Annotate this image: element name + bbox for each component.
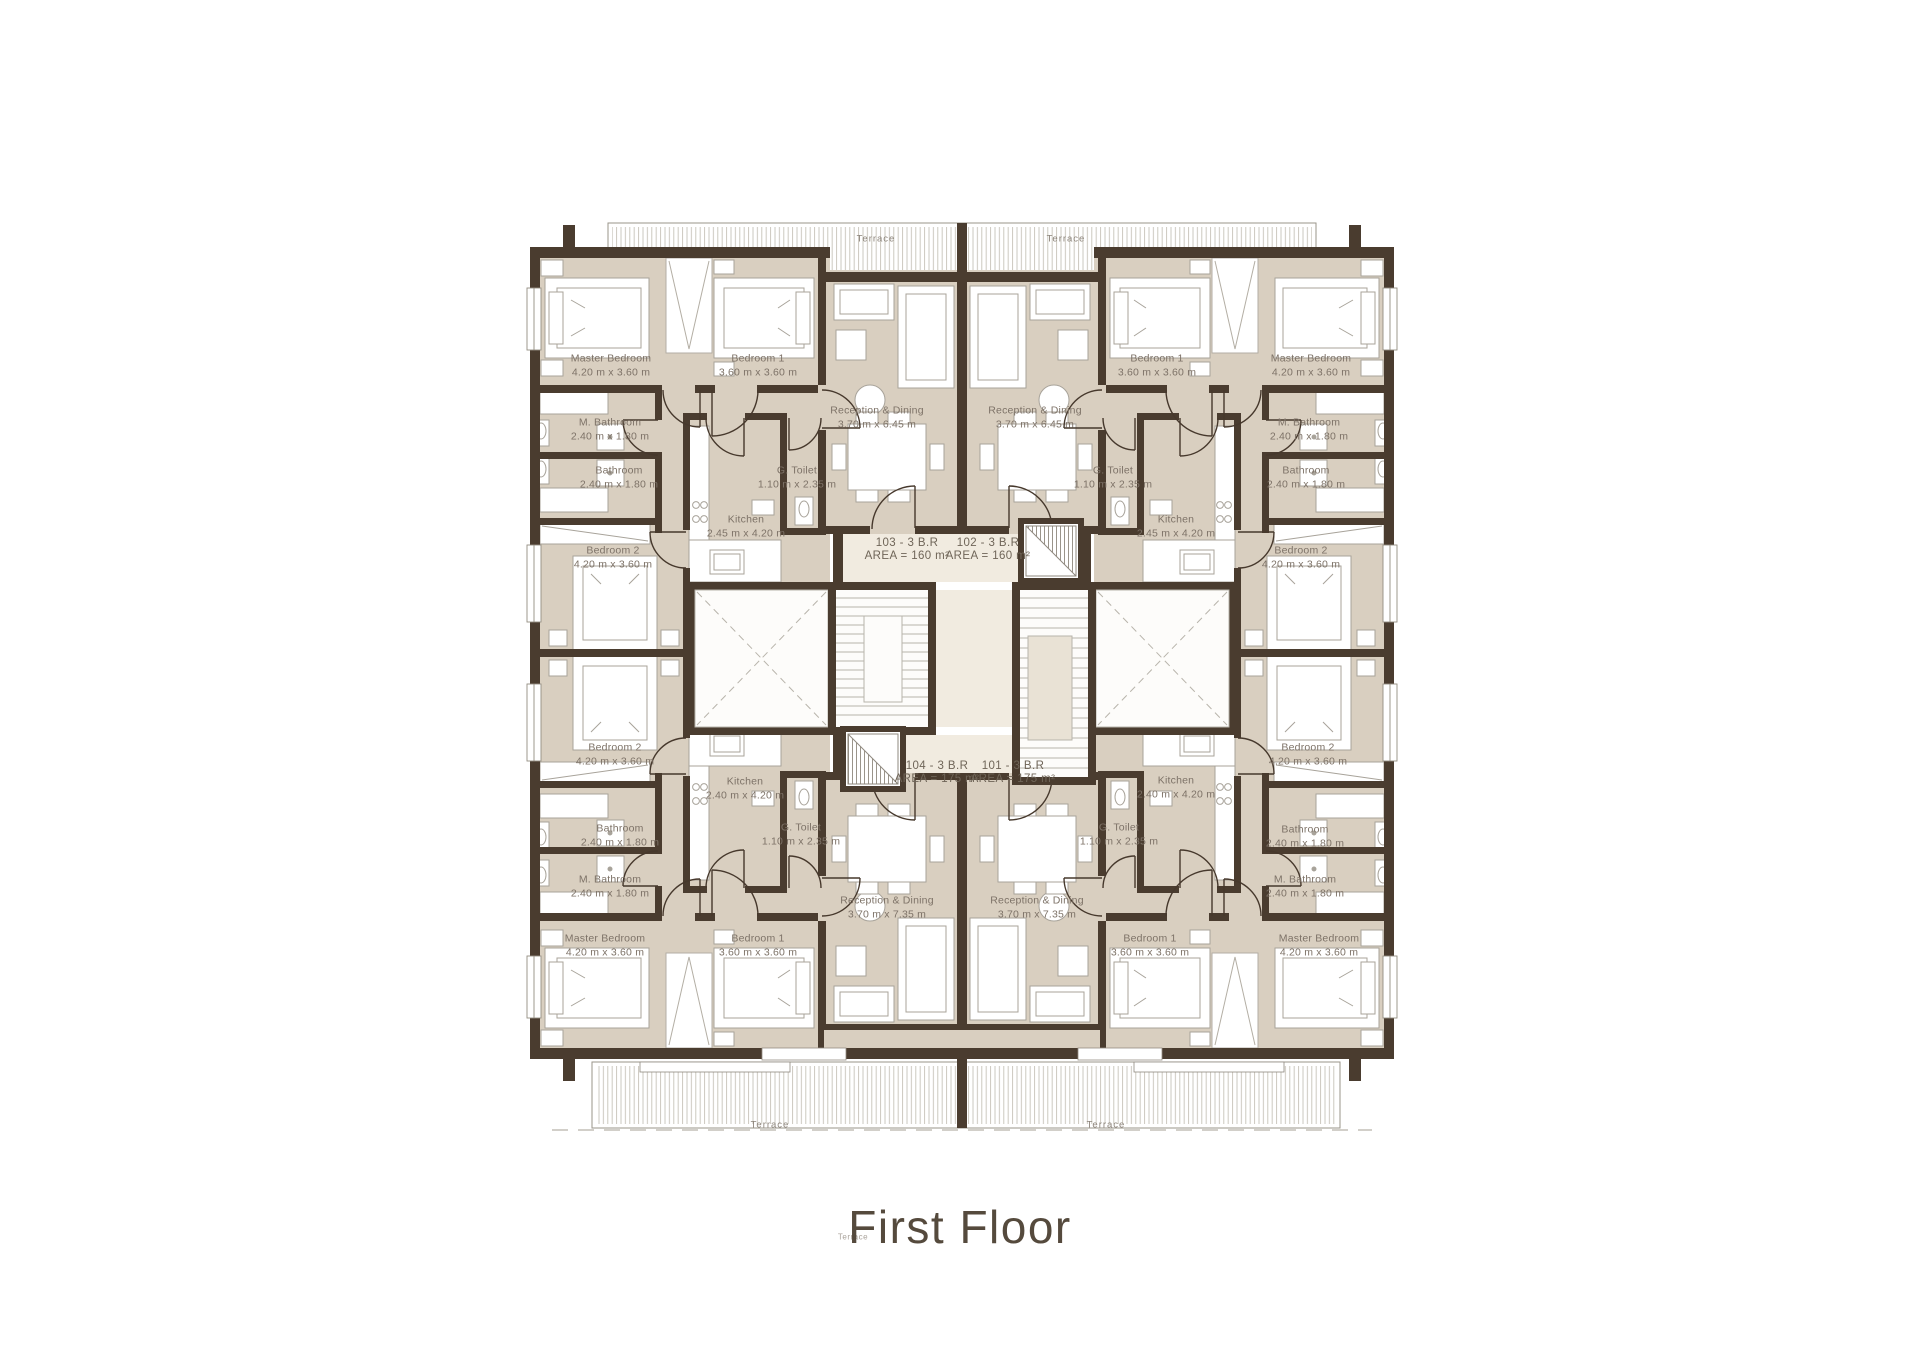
unit-number: 103 - 3 B.R — [865, 537, 950, 550]
unit-tag-103: 103 - 3 B.R AREA = 160 m² — [865, 537, 950, 563]
unit-tag-101: 101 - 3 B.R AREA = 175 m² — [971, 760, 1056, 786]
room-name: M. Bathroom — [571, 416, 649, 430]
room-dims: 3.60 m x 3.60 m — [719, 946, 797, 960]
room-name: Master Bedroom — [571, 352, 651, 366]
room-dims: 2.40 m x 1.80 m — [580, 478, 658, 492]
room-dims: 4.20 m x 3.60 m — [1279, 946, 1359, 960]
unit-number: 104 - 3 B.R — [895, 760, 980, 773]
room-name: Kitchen — [707, 513, 785, 527]
room-dims: 3.60 m x 3.60 m — [1118, 366, 1196, 380]
room-name: Bathroom — [1267, 464, 1345, 478]
room-label-103-master: Master Bedroom 4.20 m x 3.60 m — [571, 352, 651, 379]
light-well-right — [1088, 582, 1236, 735]
room-label-103-g-toilet: G. Toilet 1.10 m x 2.35 m — [758, 464, 836, 491]
terrace-label-bottom-left: Terrace — [751, 1120, 790, 1131]
room-name: Bathroom — [1266, 823, 1344, 837]
room-name: G. Toilet — [1080, 821, 1158, 835]
room-name: G. Toilet — [758, 464, 836, 478]
floor-plan-drawing — [0, 0, 1920, 1358]
room-name: Master Bedroom — [1271, 352, 1351, 366]
room-name: Bedroom 2 — [576, 741, 654, 755]
light-well-left — [688, 582, 836, 735]
room-name: Bedroom 2 — [574, 544, 652, 558]
room-dims: 1.10 m x 2.35 m — [758, 478, 836, 492]
room-label-104-master: Master Bedroom 4.20 m x 3.60 m — [565, 932, 645, 959]
room-dims: 3.70 m x 7.35 m — [840, 908, 934, 922]
room-dims: 2.40 m x 1.80 m — [1270, 430, 1348, 444]
room-label-102-g-toilet: G. Toilet 1.10 m x 2.35 m — [1074, 464, 1152, 491]
room-name: M. Bathroom — [571, 873, 649, 887]
room-name: Bathroom — [581, 822, 659, 836]
wardrobe — [666, 258, 712, 353]
room-name: Bedroom 1 — [719, 932, 797, 946]
staircase-right — [1012, 582, 1096, 785]
room-label-102-kitchen: Kitchen 2.45 m x 4.20 m — [1137, 513, 1215, 540]
room-dims: 1.10 m x 2.35 m — [762, 835, 840, 849]
room-name: G. Toilet — [1074, 464, 1152, 478]
room-label-104-bedroom2: Bedroom 2 4.20 m x 3.60 m — [576, 741, 654, 768]
unit-area: AREA = 175 m² — [971, 773, 1056, 786]
staircase-left — [828, 582, 936, 735]
unit-area: AREA = 160 m² — [865, 550, 950, 563]
room-label-101-g-toilet: G. Toilet 1.10 m x 2.35 m — [1080, 821, 1158, 848]
unit-area: AREA = 175 m² — [895, 773, 980, 786]
room-label-102-reception: Reception & Dining 3.70 m x 6.45 m — [988, 404, 1082, 431]
room-name: Bedroom 1 — [1118, 352, 1196, 366]
room-label-102-bedroom1: Bedroom 1 3.60 m x 3.60 m — [1118, 352, 1196, 379]
room-dims: 2.40 m x 1.80 m — [1266, 887, 1344, 901]
unit-area: AREA = 160 m² — [946, 550, 1031, 563]
room-label-101-master: Master Bedroom 4.20 m x 3.60 m — [1279, 932, 1359, 959]
room-dims: 3.60 m x 3.60 m — [719, 366, 797, 380]
room-dims: 1.10 m x 2.35 m — [1080, 835, 1158, 849]
room-name: Bedroom 1 — [1111, 932, 1189, 946]
room-label-104-bedroom1: Bedroom 1 3.60 m x 3.60 m — [719, 932, 797, 959]
room-name: G. Toilet — [762, 821, 840, 835]
room-label-101-kitchen: Kitchen 2.40 m x 4.20 m — [1137, 774, 1215, 801]
unit-tag-104: 104 - 3 B.R AREA = 175 m² — [895, 760, 980, 786]
unit-tag-102: 102 - 3 B.R AREA = 160 m² — [946, 537, 1031, 563]
terrace-label-bottom-right: Terrace — [1087, 1120, 1126, 1131]
room-dims: 3.70 m x 7.35 m — [990, 908, 1084, 922]
unit-number: 102 - 3 B.R — [946, 537, 1031, 550]
room-label-103-bathroom: Bathroom 2.40 m x 1.80 m — [580, 464, 658, 491]
room-label-101-bedroom1: Bedroom 1 3.60 m x 3.60 m — [1111, 932, 1189, 959]
floor-plan-page: Master Bedroom 4.20 m x 3.60 m Bedroom 1… — [0, 0, 1920, 1358]
room-dims: 4.20 m x 3.60 m — [571, 366, 651, 380]
room-name: Kitchen — [706, 775, 784, 789]
room-dims: 2.40 m x 1.80 m — [581, 836, 659, 850]
room-name: Kitchen — [1137, 774, 1215, 788]
room-label-101-bathroom: Bathroom 2.40 m x 1.80 m — [1266, 823, 1344, 850]
room-name: M. Bathroom — [1270, 416, 1348, 430]
room-label-104-kitchen: Kitchen 2.40 m x 4.20 m — [706, 775, 784, 802]
room-dims: 2.40 m x 4.20 m — [706, 789, 784, 803]
room-name: Bedroom 1 — [719, 352, 797, 366]
room-dims: 2.45 m x 4.20 m — [1137, 527, 1215, 541]
room-name: Reception & Dining — [830, 404, 924, 418]
room-dims: 3.60 m x 3.60 m — [1111, 946, 1189, 960]
room-dims: 4.20 m x 3.60 m — [1269, 755, 1347, 769]
room-name: Bathroom — [580, 464, 658, 478]
room-label-104-bathroom: Bathroom 2.40 m x 1.80 m — [581, 822, 659, 849]
room-name: Reception & Dining — [840, 894, 934, 908]
room-label-103-m-bathroom: M. Bathroom 2.40 m x 1.80 m — [571, 416, 649, 443]
room-label-103-reception: Reception & Dining 3.70 m x 6.45 m — [830, 404, 924, 431]
room-dims: 4.20 m x 3.60 m — [565, 946, 645, 960]
room-name: M. Bathroom — [1266, 873, 1344, 887]
room-dims: 2.40 m x 4.20 m — [1137, 788, 1215, 802]
room-dims: 4.20 m x 3.60 m — [574, 558, 652, 572]
room-label-104-reception: Reception & Dining 3.70 m x 7.35 m — [840, 894, 934, 921]
room-dims: 2.40 m x 1.80 m — [571, 430, 649, 444]
room-label-102-master: Master Bedroom 4.20 m x 3.60 m — [1271, 352, 1351, 379]
room-label-103-kitchen: Kitchen 2.45 m x 4.20 m — [707, 513, 785, 540]
room-dims: 3.70 m x 6.45 m — [988, 418, 1082, 432]
room-dims: 4.20 m x 3.60 m — [1271, 366, 1351, 380]
room-dims: 2.40 m x 1.80 m — [1266, 837, 1344, 851]
room-label-101-reception: Reception & Dining 3.70 m x 7.35 m — [990, 894, 1084, 921]
room-name: Reception & Dining — [990, 894, 1084, 908]
room-name: Bedroom 2 — [1269, 741, 1347, 755]
room-label-104-m-bathroom: M. Bathroom 2.40 m x 1.80 m — [571, 873, 649, 900]
room-name: Reception & Dining — [988, 404, 1082, 418]
room-label-102-bedroom2: Bedroom 2 4.20 m x 3.60 m — [1262, 544, 1340, 571]
room-dims: 4.20 m x 3.60 m — [1262, 558, 1340, 572]
room-dims: 3.70 m x 6.45 m — [830, 418, 924, 432]
page-title: First Floor — [848, 1200, 1072, 1254]
room-dims: 2.40 m x 1.80 m — [1267, 478, 1345, 492]
room-label-102-m-bathroom: M. Bathroom 2.40 m x 1.80 m — [1270, 416, 1348, 443]
room-label-104-g-toilet: G. Toilet 1.10 m x 2.35 m — [762, 821, 840, 848]
room-label-101-bedroom2: Bedroom 2 4.20 m x 3.60 m — [1269, 741, 1347, 768]
room-dims: 4.20 m x 3.60 m — [576, 755, 654, 769]
room-label-102-bathroom: Bathroom 2.40 m x 1.80 m — [1267, 464, 1345, 491]
room-label-103-bedroom1: Bedroom 1 3.60 m x 3.60 m — [719, 352, 797, 379]
room-label-103-bedroom2: Bedroom 2 4.20 m x 3.60 m — [574, 544, 652, 571]
terrace-label-top-right: Terrace — [1047, 234, 1086, 245]
unit-number: 101 - 3 B.R — [971, 760, 1056, 773]
room-dims: 2.40 m x 1.80 m — [571, 887, 649, 901]
room-name: Master Bedroom — [1279, 932, 1359, 946]
room-dims: 1.10 m x 2.35 m — [1074, 478, 1152, 492]
terrace-label-top-left: Terrace — [857, 234, 896, 245]
room-label-101-m-bathroom: M. Bathroom 2.40 m x 1.80 m — [1266, 873, 1344, 900]
room-name: Kitchen — [1137, 513, 1215, 527]
room-name: Master Bedroom — [565, 932, 645, 946]
room-name: Bedroom 2 — [1262, 544, 1340, 558]
room-dims: 2.45 m x 4.20 m — [707, 527, 785, 541]
